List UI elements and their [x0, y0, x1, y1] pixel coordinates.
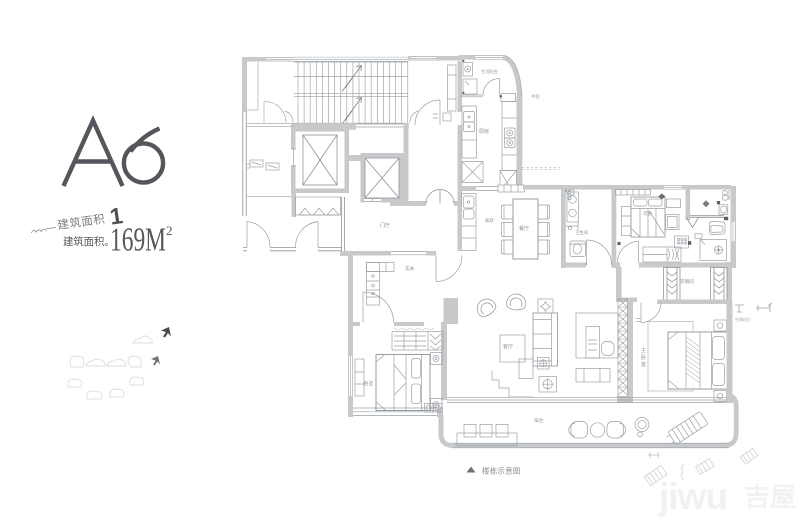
svg-text:次卧: 次卧: [643, 210, 653, 217]
svg-text:卧室: 卧室: [364, 380, 374, 387]
svg-text:客厅: 客厅: [503, 343, 513, 350]
svg-text:阳台: 阳台: [534, 417, 544, 424]
svg-text:2: 2: [166, 223, 173, 238]
svg-text:jiwu: jiwu: [658, 476, 727, 517]
svg-text:厨房: 厨房: [479, 128, 489, 135]
svg-text:室: 室: [641, 361, 646, 368]
svg-text:主: 主: [641, 347, 646, 354]
svg-text:门厅: 门厅: [380, 222, 390, 229]
svg-text:建筑面积: 建筑面积: [57, 212, 106, 233]
svg-text:吉屋: 吉屋: [744, 482, 796, 512]
svg-text:建筑面积。: 建筑面积。: [63, 235, 115, 248]
svg-text:玄关: 玄关: [405, 265, 415, 272]
svg-text:空调机位: 空调机位: [735, 316, 751, 322]
svg-text:餐厅: 餐厅: [519, 225, 529, 232]
svg-text:衣帽间: 衣帽间: [680, 278, 694, 285]
svg-text:生活阳台: 生活阳台: [481, 68, 498, 75]
svg-text:卫生间: 卫生间: [575, 229, 588, 236]
svg-text:家政: 家政: [485, 217, 494, 224]
svg-text:169M: 169M: [110, 222, 166, 259]
svg-text:卧: 卧: [641, 354, 646, 361]
svg-text:楼栋示意图: 楼栋示意图: [482, 466, 521, 476]
svg-text:中庭: 中庭: [531, 93, 540, 100]
